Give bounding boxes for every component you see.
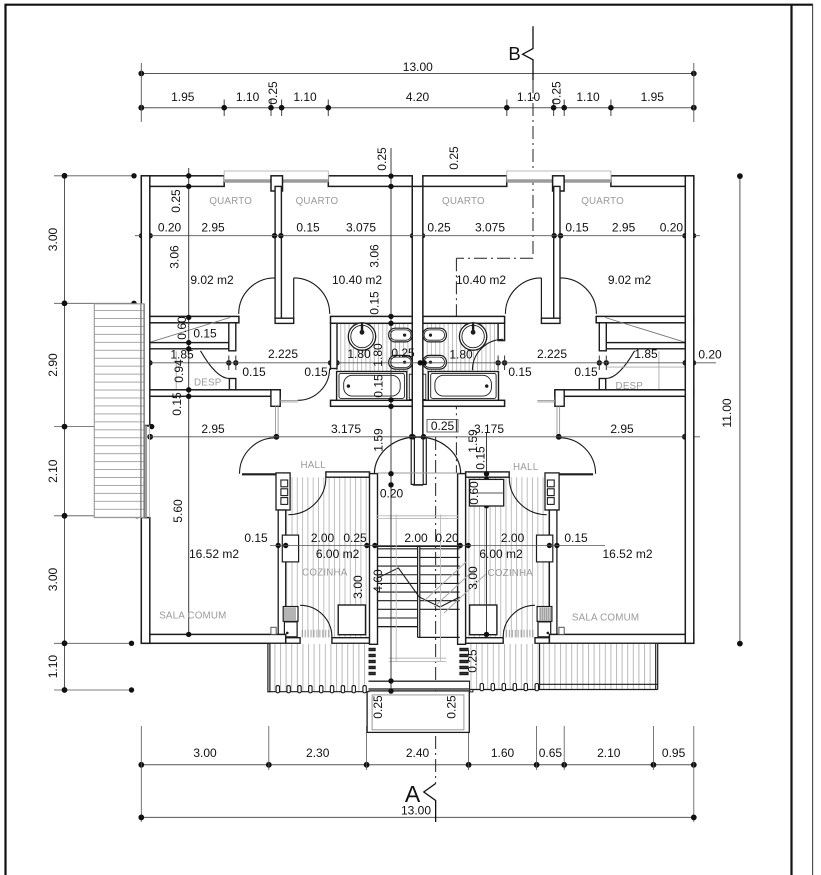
svg-text:3.00: 3.00 [466, 566, 480, 590]
svg-text:1.60: 1.60 [491, 746, 515, 760]
svg-text:0.15: 0.15 [244, 531, 268, 545]
svg-text:2.95: 2.95 [201, 422, 225, 436]
svg-text:0.25: 0.25 [266, 81, 280, 105]
svg-text:0.15: 0.15 [508, 365, 532, 379]
svg-text:16.52 m2: 16.52 m2 [602, 547, 652, 561]
svg-text:3.175: 3.175 [331, 422, 361, 436]
svg-text:QUARTO: QUARTO [581, 196, 624, 207]
svg-text:0.25: 0.25 [447, 146, 461, 170]
svg-text:2.30: 2.30 [306, 746, 330, 760]
svg-text:1.95: 1.95 [171, 90, 195, 104]
svg-text:0.95: 0.95 [662, 746, 686, 760]
svg-text:3.00: 3.00 [46, 227, 60, 251]
svg-text:13.00: 13.00 [403, 60, 433, 74]
svg-text:2.95: 2.95 [201, 220, 225, 234]
svg-text:3.075: 3.075 [346, 221, 376, 235]
svg-text:2.225: 2.225 [268, 347, 298, 361]
svg-text:6.00 m2: 6.00 m2 [479, 547, 523, 561]
svg-text:1.10: 1.10 [576, 90, 600, 104]
svg-text:9.02 m2: 9.02 m2 [608, 273, 652, 287]
svg-text:0.60: 0.60 [175, 316, 189, 340]
svg-text:3.06: 3.06 [168, 245, 182, 269]
svg-text:0.25: 0.25 [550, 81, 564, 105]
svg-text:2.00: 2.00 [404, 531, 428, 545]
svg-text:1.95: 1.95 [641, 90, 665, 104]
svg-text:0.15: 0.15 [474, 446, 488, 470]
svg-text:0.25: 0.25 [169, 189, 183, 213]
svg-text:1.80: 1.80 [347, 347, 371, 361]
svg-text:0.20: 0.20 [660, 221, 684, 235]
svg-text:COZINHA: COZINHA [488, 568, 534, 579]
svg-text:2.10: 2.10 [46, 459, 60, 483]
svg-text:1.80: 1.80 [449, 348, 473, 362]
svg-text:0.20: 0.20 [380, 487, 404, 501]
svg-text:0.94: 0.94 [172, 359, 186, 383]
svg-text:10.40 m2: 10.40 m2 [332, 273, 382, 287]
svg-text:0.20: 0.20 [698, 348, 722, 362]
svg-text:5.60: 5.60 [171, 499, 185, 523]
svg-text:1.10: 1.10 [46, 655, 60, 679]
svg-text:10.40 m2: 10.40 m2 [456, 273, 506, 287]
svg-text:0.25: 0.25 [427, 221, 451, 235]
svg-text:0.25: 0.25 [431, 419, 455, 433]
svg-text:2.95: 2.95 [612, 221, 636, 235]
svg-text:3.00: 3.00 [46, 567, 60, 591]
svg-text:0.15: 0.15 [296, 221, 320, 235]
svg-text:0.15: 0.15 [368, 291, 382, 315]
svg-text:0.20: 0.20 [158, 221, 182, 235]
svg-text:0.25: 0.25 [445, 695, 459, 719]
svg-text:0.15: 0.15 [242, 365, 266, 379]
svg-text:1.10: 1.10 [236, 90, 260, 104]
svg-text:0.65: 0.65 [539, 746, 563, 760]
svg-text:3.075: 3.075 [475, 221, 505, 235]
svg-text:DESP: DESP [194, 378, 222, 389]
svg-text:2.40: 2.40 [406, 746, 430, 760]
svg-text:11.00: 11.00 [720, 398, 734, 427]
svg-text:2.225: 2.225 [537, 347, 567, 361]
svg-text:SALA COMUM: SALA COMUM [572, 613, 639, 624]
svg-text:13.00: 13.00 [401, 804, 431, 818]
svg-text:2.10: 2.10 [597, 746, 621, 760]
svg-text:SALA COMUM: SALA COMUM [159, 610, 226, 621]
svg-text:2.00: 2.00 [501, 531, 525, 545]
svg-text:QUARTO: QUARTO [296, 196, 339, 207]
svg-text:B: B [508, 43, 520, 64]
svg-text:1.59: 1.59 [372, 428, 386, 452]
svg-text:HALL: HALL [513, 462, 539, 473]
svg-text:0.25: 0.25 [391, 346, 415, 360]
svg-text:HALL: HALL [300, 460, 326, 471]
svg-text:0.15: 0.15 [170, 392, 184, 416]
svg-text:9.02 m2: 9.02 m2 [190, 273, 234, 287]
svg-text:QUARTO: QUARTO [442, 196, 485, 207]
svg-text:0.15: 0.15 [372, 374, 386, 398]
svg-text:3.06: 3.06 [368, 244, 382, 268]
svg-text:0.15: 0.15 [564, 531, 588, 545]
svg-text:1.85: 1.85 [634, 347, 658, 361]
svg-text:DESP: DESP [616, 381, 644, 392]
svg-text:COZINHA: COZINHA [302, 568, 348, 579]
svg-text:1.80: 1.80 [371, 343, 385, 367]
svg-text:1.10: 1.10 [293, 90, 317, 104]
svg-text:1.10: 1.10 [517, 90, 541, 104]
svg-text:0.15: 0.15 [304, 365, 328, 379]
svg-text:0.60: 0.60 [467, 481, 481, 505]
svg-text:0.25: 0.25 [375, 147, 389, 171]
svg-text:0.25: 0.25 [371, 695, 385, 719]
svg-text:0.20: 0.20 [435, 531, 459, 545]
svg-text:0.15: 0.15 [574, 365, 598, 379]
svg-text:0.25: 0.25 [343, 531, 367, 545]
svg-text:3.00: 3.00 [351, 575, 365, 599]
svg-text:0.15: 0.15 [193, 327, 217, 341]
svg-text:4.20: 4.20 [406, 90, 430, 104]
svg-text:0.25: 0.25 [466, 649, 480, 673]
svg-text:6.00 m2: 6.00 m2 [316, 547, 360, 561]
svg-text:4.60: 4.60 [371, 569, 385, 593]
svg-text:2.90: 2.90 [46, 353, 60, 377]
svg-text:0.15: 0.15 [565, 221, 589, 235]
svg-text:3.00: 3.00 [193, 746, 217, 760]
svg-text:QUARTO: QUARTO [209, 196, 252, 207]
svg-text:2.00: 2.00 [311, 531, 335, 545]
svg-text:2.95: 2.95 [610, 422, 634, 436]
svg-text:16.52 m2: 16.52 m2 [189, 547, 239, 561]
